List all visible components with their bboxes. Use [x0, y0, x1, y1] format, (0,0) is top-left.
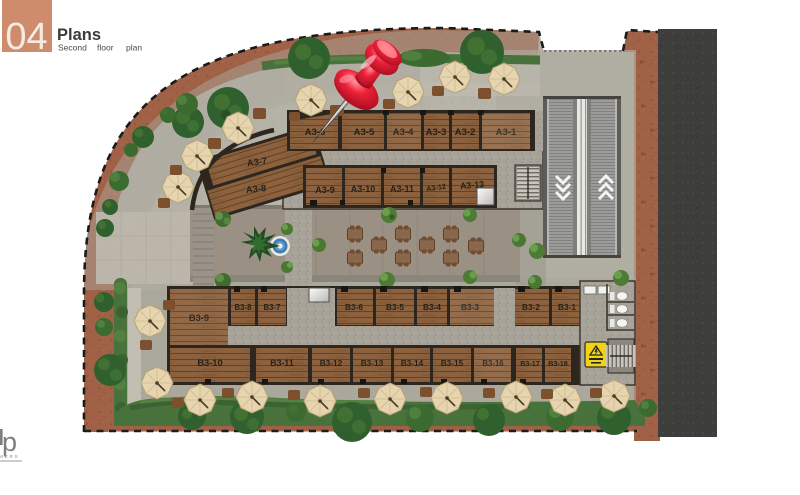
svg-text:floor: floor: [97, 43, 114, 53]
svg-text:plan: plan: [126, 43, 142, 53]
svg-text:p: p: [2, 427, 17, 457]
svg-text:Plans: Plans: [57, 26, 101, 44]
svg-text:04: 04: [5, 16, 47, 58]
svg-text:MERS: MERS: [0, 454, 19, 459]
svg-text:Second: Second: [58, 43, 87, 53]
